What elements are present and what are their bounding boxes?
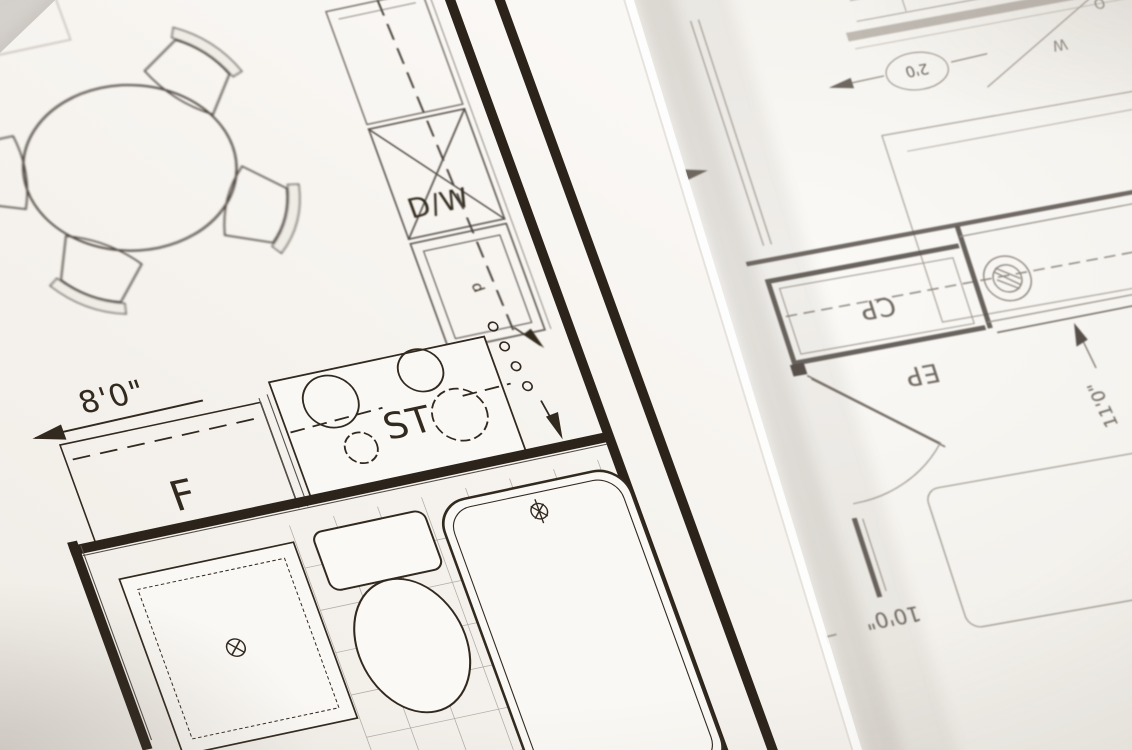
photo-floor-plans: W O 2'0 xyxy=(0,0,1132,750)
blueprint-photo: W O 2'0 xyxy=(0,0,1132,750)
